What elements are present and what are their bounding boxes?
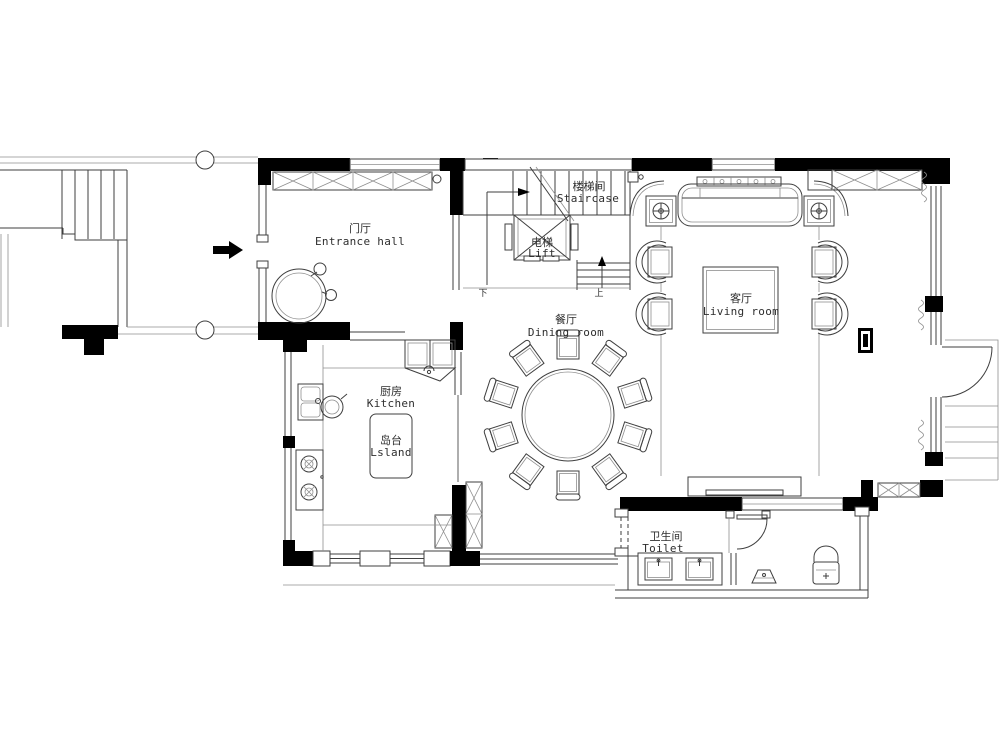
floor-drain [752, 570, 776, 583]
side-table-lamp [804, 196, 834, 226]
toilet-counter [638, 553, 722, 585]
cooktop [296, 450, 323, 510]
dining-chair [618, 377, 653, 409]
entrance-arrow [213, 241, 243, 259]
floor-socket [858, 328, 873, 353]
dining-chair [591, 453, 627, 491]
right-wall [919, 186, 999, 497]
dining-chair [618, 421, 653, 453]
dining-chair [483, 377, 518, 409]
curtain-symbol [919, 300, 924, 330]
entrance-hall-label-en: Entrance hall [315, 235, 405, 248]
dining-chair [508, 339, 544, 377]
curtain-symbol [919, 420, 924, 450]
staircase-label-zh: 楼梯间 [573, 179, 606, 193]
dining-room-label-zh: 餐厅 [555, 312, 577, 326]
armchair [636, 293, 672, 335]
armchair [812, 241, 848, 283]
dining-chair [591, 339, 627, 377]
toilet-label-zh: 卫生间 [650, 529, 683, 543]
refrigerator [405, 340, 455, 381]
dining-chair [556, 471, 580, 500]
island-label-zh: 岛台 [380, 433, 402, 447]
wc-toilet [813, 546, 839, 584]
floor-plan: 门厅 Entrance hall 楼梯间 Staircase 电梯 [0, 0, 1000, 750]
staircase-label-en: Staircase [557, 192, 619, 205]
armchair [636, 241, 672, 283]
island-label-en: Lsland [370, 446, 412, 459]
stair-up-marker: 上 [594, 288, 603, 299]
toilet-label-en: Toilet [642, 542, 684, 555]
entrance-hall-label-zh: 门厅 [349, 221, 371, 235]
sofa-console [697, 177, 781, 186]
side-table-lamp [646, 196, 676, 226]
living-room-label-zh: 客厅 [730, 291, 752, 305]
sofa [678, 184, 802, 226]
living-room [628, 172, 873, 496]
plant [272, 263, 337, 323]
tv-cabinet [688, 477, 801, 496]
wash-basin [686, 558, 713, 580]
floor-plan-drawing: 门厅 Entrance hall 楼梯间 Staircase 电梯 [0, 0, 1000, 750]
stair-down-marker: 下 [478, 289, 487, 299]
armchair [812, 293, 848, 335]
kitchen-sink [298, 384, 347, 420]
kitchen-label-en: Kitchen [367, 397, 415, 410]
dining-chair [483, 421, 518, 453]
wash-basin [645, 558, 672, 580]
entrance-hall [257, 158, 463, 352]
living-room-label-en: Living room [703, 305, 779, 318]
dining-room [483, 330, 652, 500]
dining-chair [508, 453, 544, 491]
lift-label-en: Lift [528, 247, 556, 260]
dining-room-label-en: Dining room [528, 326, 604, 339]
